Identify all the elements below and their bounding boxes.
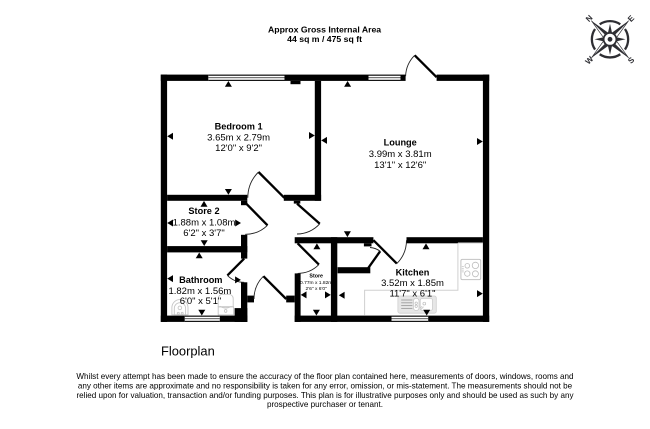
svg-text:3.65m x 2.79m: 3.65m x 2.79m — [207, 133, 270, 144]
svg-text:2'6" x 6'0": 2'6" x 6'0" — [306, 286, 328, 292]
svg-text:any other items are approximat: any other items are approximate and no r… — [78, 382, 573, 391]
svg-text:Floorplan: Floorplan — [161, 344, 215, 359]
svg-text:11'7" x 6'1": 11'7" x 6'1" — [389, 288, 435, 299]
svg-text:relied upon for valuation, tra: relied upon for valuation, transaction a… — [76, 391, 574, 400]
svg-text:3.52m x 1.85m: 3.52m x 1.85m — [381, 278, 444, 289]
svg-text:13'1" x 12'6": 13'1" x 12'6" — [374, 160, 426, 171]
svg-text:Bathroom: Bathroom — [179, 275, 222, 285]
svg-text:3.99m x 3.81m: 3.99m x 3.81m — [369, 149, 432, 160]
svg-text:12'0" x 9'2": 12'0" x 9'2" — [215, 143, 262, 154]
svg-text:44 sq m / 475 sq ft: 44 sq m / 475 sq ft — [287, 34, 362, 44]
svg-text:Store: Store — [309, 274, 323, 280]
svg-text:prospective purchaser or tenan: prospective purchaser or tenant. — [267, 400, 383, 409]
svg-text:Kitchen: Kitchen — [396, 267, 430, 277]
svg-text:6'2" x 3'7": 6'2" x 3'7" — [183, 228, 225, 239]
svg-text:1.88m x 1.08m: 1.88m x 1.08m — [173, 217, 236, 228]
svg-text:0.77m x 1.82m: 0.77m x 1.82m — [300, 280, 332, 286]
svg-text:S: S — [626, 55, 637, 66]
svg-text:Store 2: Store 2 — [188, 206, 219, 216]
svg-text:Whilst every attempt has been: Whilst every attempt has been made to en… — [76, 372, 573, 381]
svg-text:Lounge: Lounge — [384, 138, 417, 148]
svg-text:Bedroom 1: Bedroom 1 — [215, 121, 263, 131]
svg-text:6'0" x 5'1": 6'0" x 5'1" — [180, 296, 222, 307]
